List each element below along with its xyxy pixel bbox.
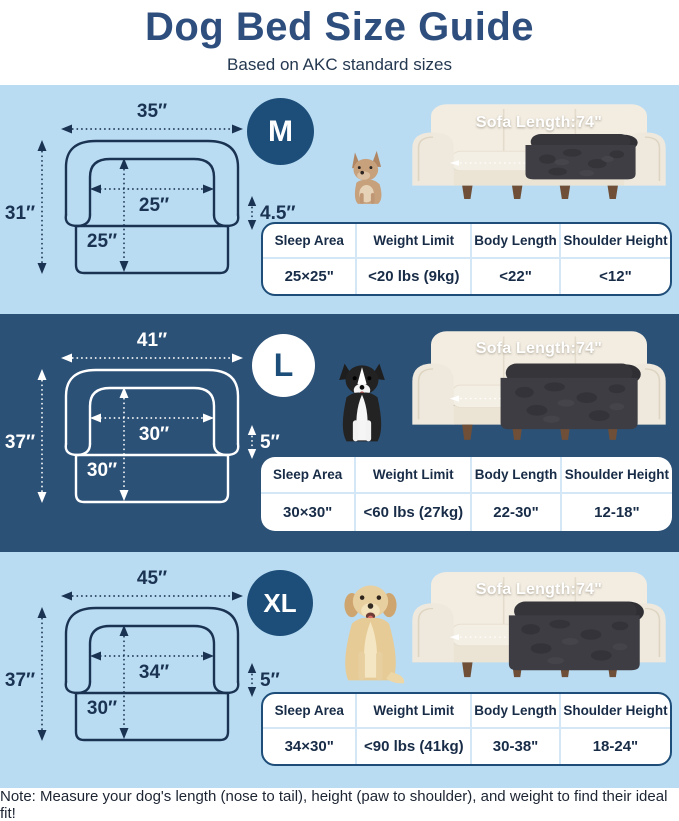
spec-value-body-length: <22" <box>472 259 561 294</box>
dim-arm-height: 5″ <box>260 432 280 453</box>
dim-arm-height: 4.5″ <box>260 203 296 224</box>
header: Dog Bed Size Guide Based on AKC standard… <box>0 0 679 85</box>
dim-inner-width: 30″ <box>139 424 169 445</box>
dog-bed-size-guide: Dog Bed Size Guide Based on AKC standard… <box>0 0 679 821</box>
sofa-scene-l: Sofa Length:74" <box>404 324 674 448</box>
dog-bed-cover-l <box>501 364 641 430</box>
spec-header-shoulder-height: Shoulder Height <box>562 457 672 494</box>
footer-note: Note: Measure your dog's length (nose to… <box>0 788 679 821</box>
spec-value-sleep-area: 25×25" <box>263 259 357 294</box>
dim-inner-width: 34″ <box>139 662 169 683</box>
footer: Note: Measure your dog's length (nose to… <box>0 788 679 821</box>
dim-outer-width: 35″ <box>137 101 167 122</box>
dog-bed-cover-xl <box>509 602 644 671</box>
dim-outer-width: 45″ <box>137 568 167 589</box>
sofa-length-label: Sofa Length:74" <box>476 114 602 132</box>
spec-header-body-length: Body Length <box>472 457 562 494</box>
spec-header-body-length: Body Length <box>472 694 561 729</box>
spec-value-shoulder-height: 18-24" <box>561 729 670 764</box>
dim-outer-height: 37″ <box>5 670 35 691</box>
french-bulldog-image <box>346 148 390 206</box>
section-size-xl: 45″ 37″ 34″ 30″ 5″ XL Sofa Length:74" Sl… <box>0 552 679 788</box>
spec-header-shoulder-height: Shoulder Height <box>561 694 670 729</box>
size-badge-m: M <box>247 98 314 165</box>
dog-bed-cover-m <box>526 134 638 179</box>
spec-value-sleep-area: 30×30" <box>261 494 356 531</box>
spec-header-weight-limit: Weight Limit <box>357 224 472 259</box>
dim-outer-width: 41″ <box>137 330 167 351</box>
dim-inner-height: 30″ <box>87 698 117 719</box>
size-badge-l: L <box>252 334 315 397</box>
spec-header-sleep-area: Sleep Area <box>263 694 357 729</box>
spec-header-sleep-area: Sleep Area <box>263 224 357 259</box>
dim-inner-height: 25″ <box>87 231 117 252</box>
spec-header-sleep-area: Sleep Area <box>261 457 356 494</box>
spec-value-body-length: 22-30" <box>472 494 562 531</box>
spec-value-shoulder-height: <12" <box>561 259 670 294</box>
spec-value-weight-limit: <60 lbs (27kg) <box>356 494 472 531</box>
dim-outer-height: 37″ <box>5 432 35 453</box>
border-collie-image <box>330 356 394 448</box>
spec-header-weight-limit: Weight Limit <box>357 694 472 729</box>
spec-header-body-length: Body Length <box>472 224 561 259</box>
golden-retriever-image <box>333 579 408 686</box>
spec-value-weight-limit: <20 lbs (9kg) <box>357 259 472 294</box>
spec-header-shoulder-height: Shoulder Height <box>561 224 670 259</box>
spec-value-sleep-area: 34×30" <box>263 729 357 764</box>
spec-value-shoulder-height: 12-18" <box>562 494 672 531</box>
page-subtitle: Based on AKC standard sizes <box>0 55 679 75</box>
section-size-m: 35″ 31″ 25″ 25″ 4.5″ M Sofa Length:74" S… <box>0 85 679 314</box>
section-size-l: 41″ 37″ 30″ 30″ 5″ L Sofa Length:74" Sle… <box>0 314 679 552</box>
sofa-scene-m: Sofa Length:74" <box>404 98 674 206</box>
spec-table-l: Sleep Area Weight Limit Body Length Shou… <box>261 457 672 531</box>
spec-table-m: Sleep Area Weight Limit Body Length Shou… <box>261 222 672 296</box>
dim-arm-height: 5″ <box>260 670 280 691</box>
dim-outer-height: 31″ <box>5 203 35 224</box>
dim-inner-height: 30″ <box>87 460 117 481</box>
sofa-scene-xl: Sofa Length:74" <box>404 565 674 685</box>
spec-value-body-length: 30-38" <box>472 729 561 764</box>
sofa-length-label: Sofa Length:74" <box>476 581 602 599</box>
spec-value-weight-limit: <90 lbs (41kg) <box>357 729 472 764</box>
dim-inner-width: 25″ <box>139 195 169 216</box>
spec-table-xl: Sleep Area Weight Limit Body Length Shou… <box>261 692 672 766</box>
page-title: Dog Bed Size Guide <box>0 0 679 50</box>
sofa-length-label: Sofa Length:74" <box>476 340 602 358</box>
size-badge-xl: XL <box>247 570 313 636</box>
spec-header-weight-limit: Weight Limit <box>356 457 472 494</box>
